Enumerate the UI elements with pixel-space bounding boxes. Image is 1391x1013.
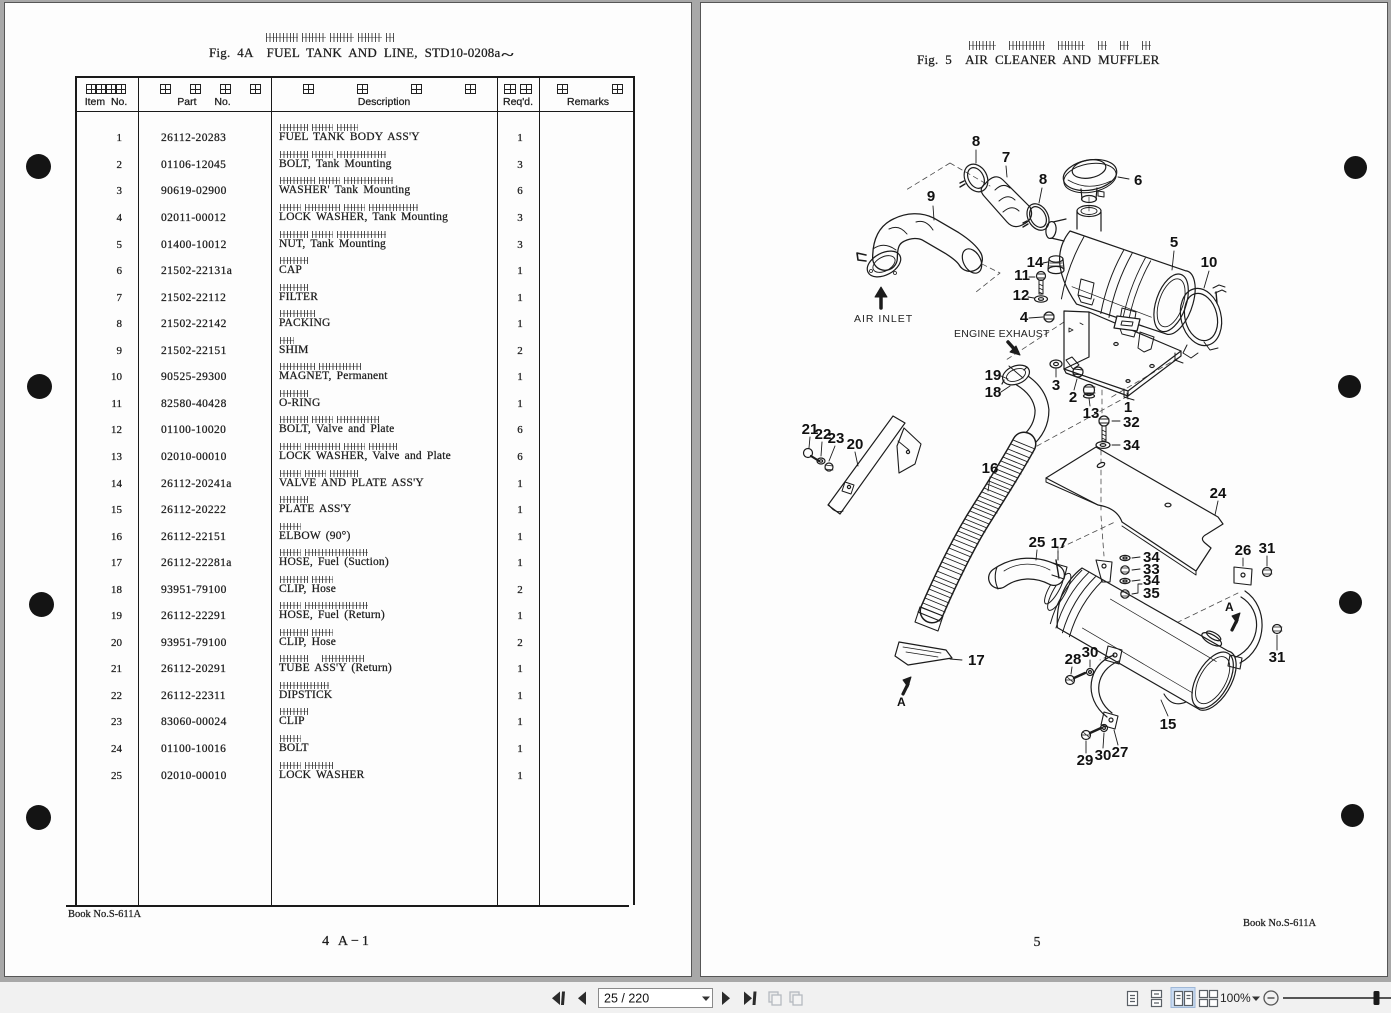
svg-text:10: 10 xyxy=(1201,254,1218,271)
svg-text:30: 30 xyxy=(1095,747,1112,764)
svg-text:32: 32 xyxy=(1123,414,1140,431)
svg-text:11: 11 xyxy=(1014,267,1030,284)
svg-text:3: 3 xyxy=(1052,377,1060,394)
svg-text:9: 9 xyxy=(927,188,935,205)
svg-text:13: 13 xyxy=(1083,405,1100,422)
svg-text:34: 34 xyxy=(1123,437,1140,454)
svg-text:31: 31 xyxy=(1269,649,1286,666)
svg-text:A: A xyxy=(1225,600,1234,614)
svg-text:15: 15 xyxy=(1160,716,1177,733)
svg-text:100%: 100% xyxy=(1220,991,1251,1005)
svg-text:30: 30 xyxy=(1082,644,1099,661)
svg-text:20: 20 xyxy=(847,436,864,453)
svg-text:2: 2 xyxy=(1069,389,1077,406)
svg-text:17: 17 xyxy=(1051,535,1068,552)
svg-text:28: 28 xyxy=(1065,651,1082,668)
svg-text:7: 7 xyxy=(1002,149,1010,166)
svg-text:31: 31 xyxy=(1259,540,1276,557)
svg-text:35: 35 xyxy=(1143,585,1160,602)
svg-text:25 / 220: 25 / 220 xyxy=(604,992,649,1006)
svg-text:26: 26 xyxy=(1235,542,1252,559)
svg-text:4: 4 xyxy=(1020,309,1029,326)
svg-text:23: 23 xyxy=(828,430,845,447)
svg-text:5: 5 xyxy=(1170,234,1178,251)
svg-text:6: 6 xyxy=(1134,172,1142,189)
svg-text:18: 18 xyxy=(985,384,1002,401)
svg-text:17: 17 xyxy=(968,652,985,669)
svg-text:8: 8 xyxy=(1039,171,1047,188)
svg-text:A: A xyxy=(897,695,906,709)
svg-text:25: 25 xyxy=(1029,534,1046,551)
svg-text:24: 24 xyxy=(1210,485,1227,502)
svg-text:12: 12 xyxy=(1013,287,1030,304)
svg-text:16: 16 xyxy=(982,460,999,477)
svg-text:19: 19 xyxy=(985,367,1002,384)
svg-text:27: 27 xyxy=(1112,744,1129,761)
svg-text:ENGINE EXHAUST: ENGINE EXHAUST xyxy=(954,328,1050,340)
svg-text:29: 29 xyxy=(1077,752,1094,769)
svg-text:AIR INLET: AIR INLET xyxy=(854,313,913,325)
svg-text:8: 8 xyxy=(972,133,980,150)
